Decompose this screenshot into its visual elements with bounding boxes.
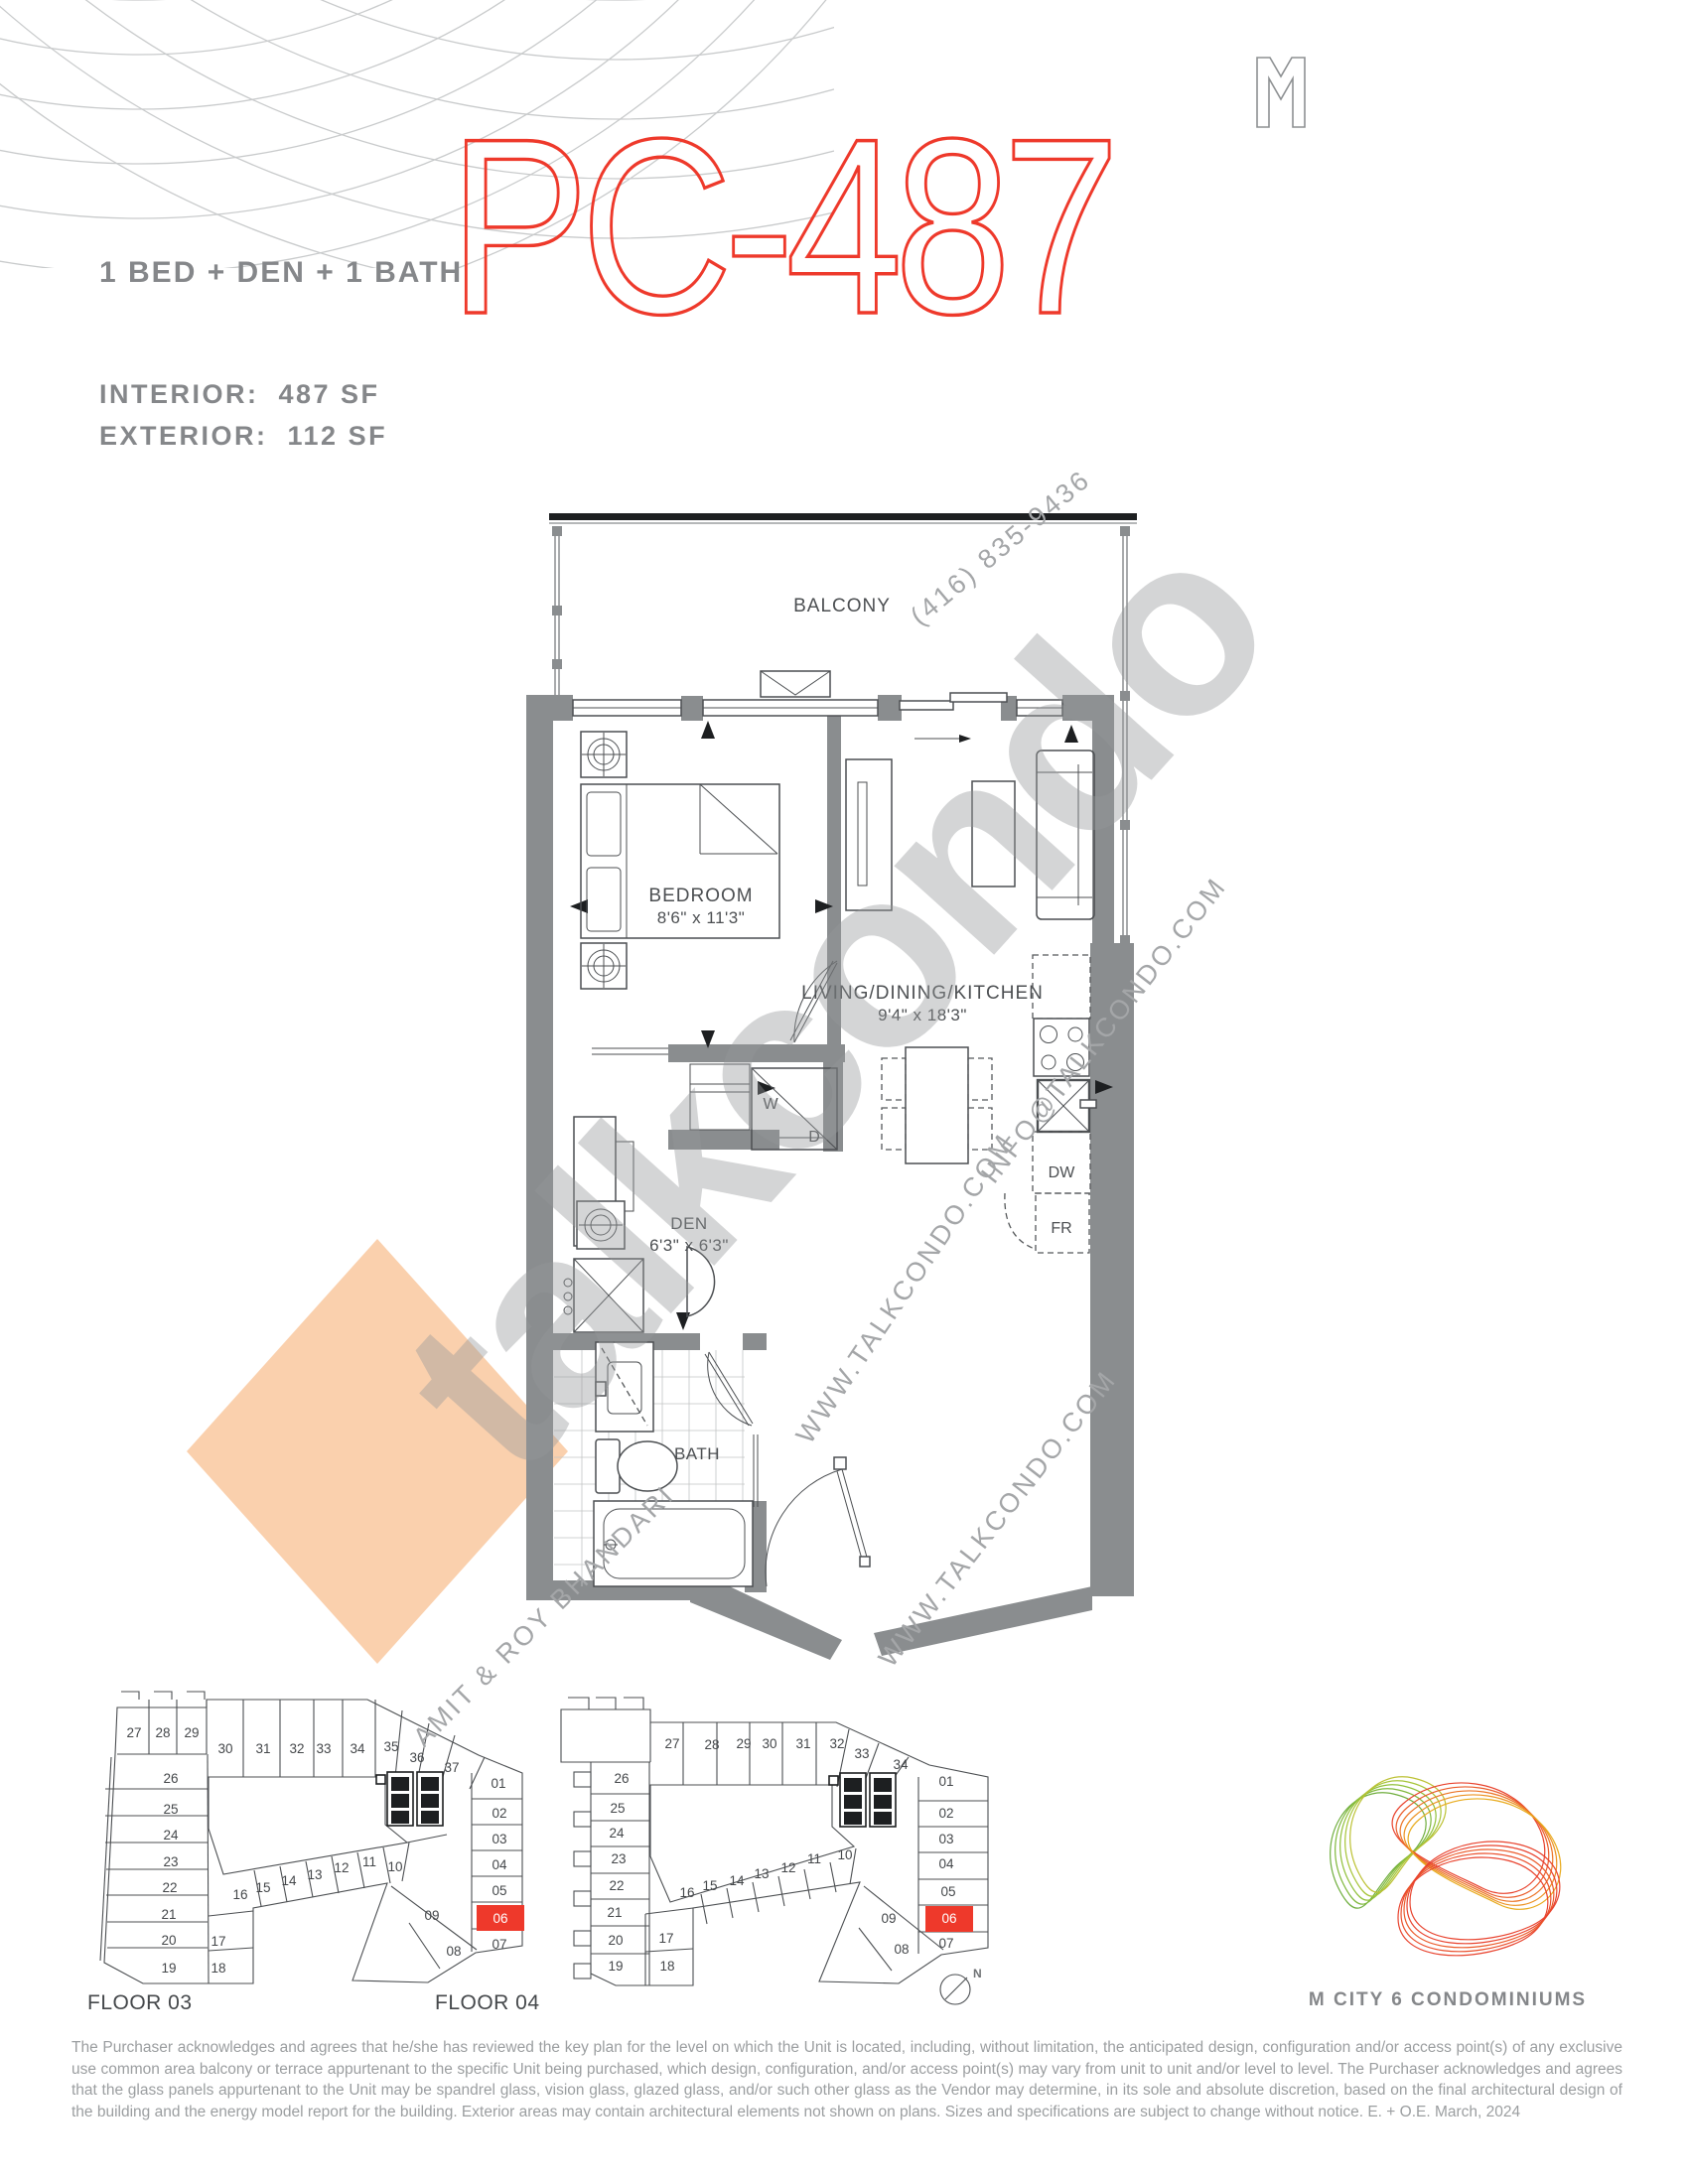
- keyplan-unit-27: 27: [664, 1736, 679, 1751]
- keyplan-unit-09: 09: [881, 1911, 896, 1926]
- keyplan-unit-32: 32: [289, 1741, 304, 1756]
- mcity6-logo: [1309, 1769, 1587, 1978]
- keyplan-unit-02: 02: [938, 1806, 953, 1821]
- keyplan-unit-10: 10: [837, 1847, 852, 1862]
- keyplan-unit-31: 31: [255, 1741, 270, 1756]
- keyplan-unit-37: 37: [444, 1760, 459, 1775]
- keyplan-unit-25: 25: [610, 1801, 625, 1816]
- keyplan-unit-11: 11: [807, 1851, 821, 1866]
- keyplan-unit-20: 20: [161, 1933, 176, 1948]
- keyplan-unit-32: 32: [829, 1736, 844, 1751]
- keyplan-unit-28: 28: [155, 1725, 170, 1740]
- floor04-label: FLOOR 04: [435, 1991, 540, 2015]
- floorplan-page: 1 BED + DEN + 1 BATH PC-487 INTERIOR: 48…: [0, 0, 1688, 2184]
- keyplan-unit-17: 17: [211, 1934, 225, 1949]
- keyplan-unit-09: 09: [424, 1908, 439, 1923]
- interior-label: INTERIOR:: [99, 379, 259, 410]
- faucet-icon: [1080, 1100, 1096, 1108]
- north-label: N: [973, 1967, 982, 1980]
- keyplan-unit-04: 04: [938, 1856, 954, 1871]
- page-title: PC-487: [449, 102, 1111, 352]
- keyplan-unit-numbers: 2728293031323334353637262524232221201916…: [126, 1725, 507, 1976]
- keyplan-unit-36: 36: [409, 1750, 424, 1765]
- keyplan-unit-26: 26: [163, 1771, 178, 1786]
- keyplan-unit-14: 14: [281, 1873, 297, 1888]
- counter: [1033, 1132, 1090, 1193]
- keyplan-unit-13: 13: [754, 1866, 769, 1881]
- keyplan-unit-01: 01: [938, 1774, 953, 1789]
- dishwasher-label: DW: [1049, 1164, 1076, 1181]
- keyplan-unit-06: 06: [941, 1911, 956, 1926]
- keyplan-unit-12: 12: [334, 1860, 349, 1875]
- keyplan-floor-04: 2728293031323334262524232221201916151413…: [467, 1678, 1023, 2010]
- balcony-label: BALCONY: [793, 596, 891, 616]
- keyplan-unit-33: 33: [316, 1741, 331, 1756]
- keyplan-unit-17: 17: [658, 1931, 673, 1946]
- keyplan-unit-24: 24: [609, 1826, 625, 1841]
- unit-type-heading: 1 BED + DEN + 1 BATH: [99, 256, 463, 290]
- keyplan-unit-34: 34: [350, 1741, 365, 1756]
- keyplan-unit-11: 11: [362, 1854, 376, 1869]
- keyplan-floor-03: 2728293031323334353637262524232221201916…: [60, 1678, 536, 1995]
- keyplan-unit-10: 10: [387, 1859, 402, 1874]
- floor03-label: FLOOR 03: [87, 1991, 193, 2015]
- keyplan-unit-08: 08: [894, 1942, 909, 1957]
- legal-disclaimer: The Purchaser acknowledges and agrees th…: [71, 2037, 1622, 2123]
- keyplan-unit-16: 16: [679, 1885, 694, 1900]
- exterior-value: 112 SF: [288, 421, 388, 452]
- keyplan-unit-15: 15: [702, 1878, 717, 1893]
- keyplan-unit-22: 22: [609, 1878, 624, 1893]
- pillow: [587, 868, 621, 931]
- entry-door: [766, 1457, 870, 1586]
- keyplan-unit-30: 30: [762, 1736, 776, 1751]
- keyplan-unit-29: 29: [736, 1736, 751, 1751]
- keyplan-unit-19: 19: [608, 1959, 623, 1974]
- keyplan-unit-14: 14: [729, 1873, 745, 1888]
- bath-label: BATH: [674, 1444, 720, 1463]
- keyplan-unit-30: 30: [217, 1741, 232, 1756]
- keyplan-unit-05: 05: [940, 1884, 955, 1899]
- keyplan-unit-16: 16: [232, 1887, 247, 1902]
- keyplan-unit-07: 07: [938, 1936, 953, 1951]
- project-name: M CITY 6 CONDOMINIUMS: [1299, 1989, 1597, 2011]
- pillow: [587, 792, 621, 856]
- keyplan-unit-28: 28: [704, 1737, 719, 1752]
- keyplan-unit-23: 23: [611, 1851, 626, 1866]
- m-logo-icon: [1254, 55, 1308, 130]
- keyplan-unit-22: 22: [162, 1880, 177, 1895]
- keyplan-unit-20: 20: [608, 1933, 623, 1948]
- keyplan-unit-26: 26: [614, 1771, 629, 1786]
- keyplan-unit-19: 19: [161, 1961, 176, 1976]
- keyplan-unit-18: 18: [211, 1961, 225, 1976]
- keyplan-unit-18: 18: [659, 1959, 674, 1974]
- keyplan-unit-34: 34: [893, 1757, 909, 1772]
- keyplan-unit-13: 13: [307, 1867, 322, 1882]
- keyplan-unit-08: 08: [446, 1944, 461, 1959]
- keyplan-unit-23: 23: [163, 1854, 178, 1869]
- keyplan-unit-25: 25: [163, 1802, 178, 1817]
- keyplan-unit-12: 12: [780, 1860, 795, 1875]
- area-stats: INTERIOR: 487 SF EXTERIOR: 112 SF: [99, 379, 387, 463]
- exterior-area-row: EXTERIOR: 112 SF: [99, 421, 387, 452]
- keyplan-unit-29: 29: [184, 1725, 199, 1740]
- keyplan-unit-21: 21: [607, 1905, 622, 1920]
- keyplan-unit-21: 21: [161, 1907, 176, 1922]
- north-compass: N: [940, 1967, 982, 2004]
- keyplan-unit-35: 35: [383, 1739, 398, 1754]
- keyplan-unit-31: 31: [795, 1736, 810, 1751]
- keyplan-unit-33: 33: [854, 1746, 869, 1761]
- keyplan-unit-24: 24: [163, 1828, 179, 1843]
- keyplan-unit-15: 15: [255, 1880, 270, 1895]
- interior-value: 487 SF: [279, 379, 380, 410]
- spandrel-box: [761, 671, 830, 697]
- keyplan-unit-03: 03: [938, 1832, 953, 1846]
- fridge-label: FR: [1051, 1220, 1071, 1237]
- keyplan-unit-27: 27: [126, 1725, 141, 1740]
- exterior-label: EXTERIOR:: [99, 421, 268, 452]
- interior-area-row: INTERIOR: 487 SF: [99, 379, 387, 410]
